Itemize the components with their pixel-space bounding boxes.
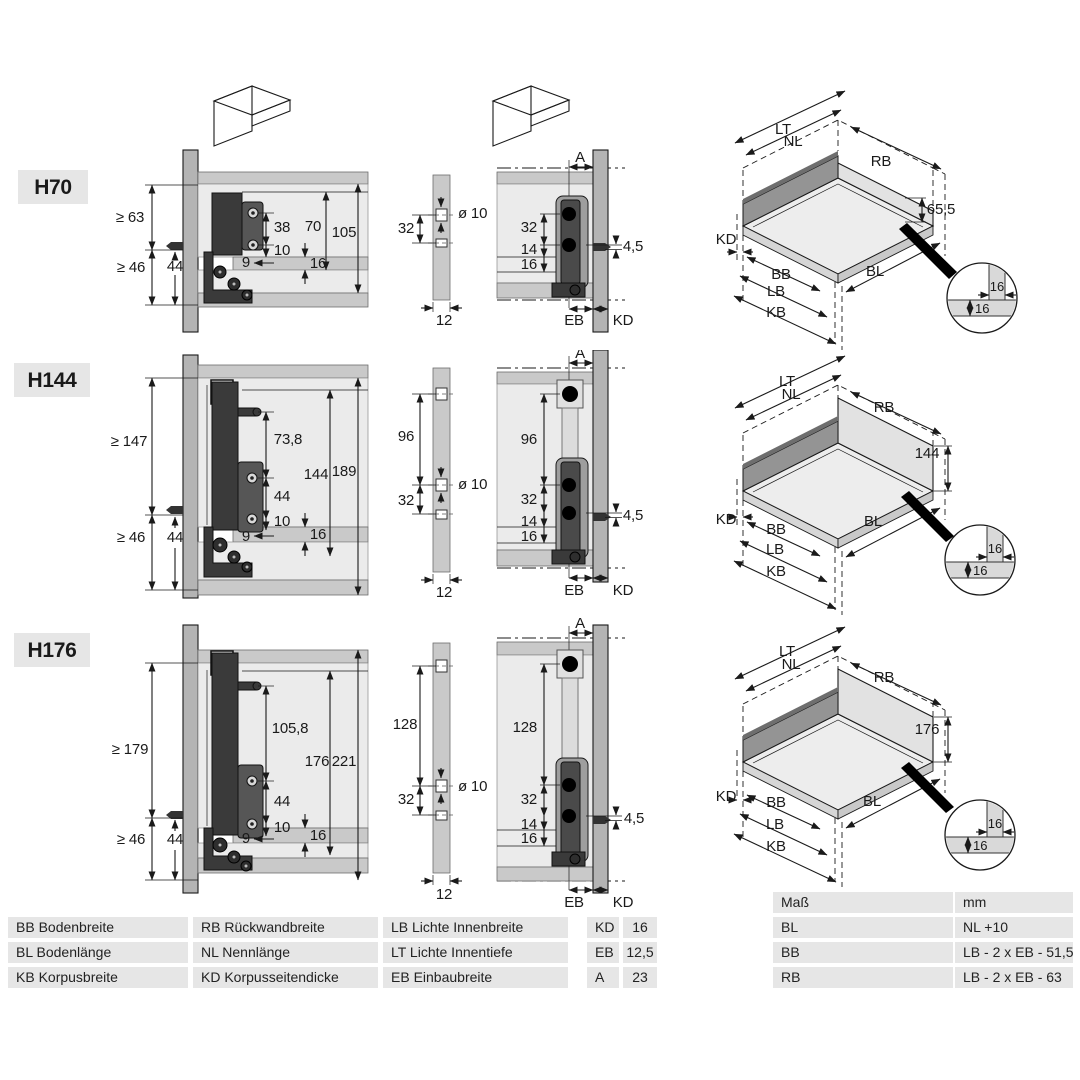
dim-top-span: 73,8 — [274, 431, 302, 448]
dim-bottom-t: 16 — [310, 827, 326, 844]
dim-height: 144 — [915, 445, 939, 462]
cabinet-side-panel — [183, 355, 198, 598]
dim-thick: 12 — [436, 886, 452, 903]
dim-total-h: 105 — [332, 224, 356, 241]
iso-view-h70: LT NL RB 65,5 KD BB LB KB BL — [716, 91, 955, 350]
detail-dim-b: 16 — [973, 838, 987, 853]
dim-nl: NL — [782, 386, 801, 403]
dim-dia: ø 10 — [458, 476, 487, 493]
dim-44: 44 — [167, 529, 183, 546]
side-view-h176: ≥ 179 ≥ 46 44 105,8 44 10 9 176 221 16 — [112, 625, 368, 893]
dim-9: 9 — [242, 528, 250, 545]
row-h176: H176 ≥ 179 ≥ 46 44 105,8 — [0, 615, 1080, 915]
page: H70 ≥ 63 ≥ 46 44 38 10 9 — [0, 0, 1080, 1080]
mass-header: mm — [955, 892, 1073, 913]
dim-lb: LB — [767, 283, 785, 300]
dim-top-span: 128 — [513, 719, 537, 736]
legend-table: BB Bodenbreite RB Rückwandbreite LB Lich… — [8, 917, 568, 988]
dim-32: 32 — [398, 492, 414, 509]
cabinet-side-panel — [183, 625, 198, 893]
detail-circle-h176: 16 16 — [901, 762, 1018, 870]
kv-key: EB — [587, 942, 619, 963]
dim-nl: NL — [782, 656, 801, 673]
cabinet-side-panel — [593, 625, 608, 893]
drawer-side-profile — [212, 382, 238, 530]
dim-nl: NL — [784, 133, 803, 150]
rear-view-h176: A 128 32 14 16 4,5 EB KD — [497, 615, 644, 911]
dim-min-top: ≥ 147 — [111, 433, 147, 450]
iso-view-h176: LT NL RB 176 KD BB LB KB BL — [716, 627, 952, 887]
dim-kd: KD — [613, 312, 634, 329]
dim-inner-h: 144 — [304, 466, 328, 483]
legend-cell: LB Lichte Innenbreite — [383, 917, 568, 938]
kv-value: 12,5 — [623, 942, 657, 963]
legend-cell: BB Bodenbreite — [8, 917, 188, 938]
mass-cell: BL — [773, 917, 953, 938]
dim-32: 32 — [398, 220, 414, 237]
detail-dim-b: 16 — [973, 563, 987, 578]
legend-cell: LT Lichte Innentiefe — [383, 942, 568, 963]
variant-label-text: H176 — [27, 639, 76, 662]
detail-dim-a: 16 — [990, 279, 1004, 294]
dim-inner-h: 176 — [305, 753, 329, 770]
row-h70: H70 ≥ 63 ≥ 46 44 38 10 9 — [0, 85, 1080, 350]
dim-45: 4,5 — [623, 238, 643, 255]
detail-circle-h70: 16 16 — [899, 223, 1020, 333]
drawer-side-profile — [212, 653, 238, 835]
dim-32: 32 — [521, 491, 537, 508]
dim-inner-h: 70 — [305, 218, 321, 235]
drawer-side-profile — [212, 193, 242, 255]
dim-kd: KD — [716, 788, 737, 805]
dim-16: 16 — [521, 528, 537, 545]
dim-min-bottom: ≥ 46 — [117, 831, 145, 848]
mass-cell: LB - 2 x EB - 63 — [955, 967, 1073, 988]
dim-9: 9 — [242, 254, 250, 271]
dim-top-span: 96 — [398, 428, 414, 445]
side-view-h70: ≥ 63 ≥ 46 44 38 10 9 70 105 16 — [116, 150, 368, 332]
detail-circle-h144: 16 16 — [901, 491, 1018, 595]
dim-min-bottom: ≥ 46 — [117, 529, 145, 546]
detail-dim-a: 16 — [988, 541, 1002, 556]
legend-cell: EB Einbaubreite — [383, 967, 568, 988]
dim-kd: KD — [716, 511, 737, 528]
dim-bottom-t: 16 — [310, 526, 326, 543]
dim-a: A — [575, 615, 585, 632]
dim-min-top: ≥ 179 — [112, 741, 148, 758]
dim-height: 176 — [915, 721, 939, 738]
mass-cell: RB — [773, 967, 953, 988]
dim-bb: BB — [771, 266, 791, 283]
dim-bl: BL — [866, 263, 884, 280]
dim-45: 4,5 — [623, 507, 643, 524]
rear-view-h144: A 96 32 14 16 4,5 EB KD — [497, 350, 643, 599]
dim-kd: KD — [613, 894, 634, 911]
dim-thick: 12 — [436, 312, 452, 329]
dim-a: A — [575, 149, 585, 166]
dim-thick: 12 — [436, 584, 452, 601]
dim-eb: EB — [564, 312, 584, 329]
legend-cell: KB Korpusbreite — [8, 967, 188, 988]
dim-44: 44 — [167, 258, 183, 275]
dim-16: 16 — [521, 256, 537, 273]
drill-template-h144: 96 32 ø 10 12 — [398, 368, 487, 601]
dimensions-table: Maß mm BL NL +10 BB LB - 2 x EB - 51,5 R… — [773, 892, 1073, 988]
legend-cell: NL Nennlänge — [193, 942, 378, 963]
dim-32: 32 — [398, 791, 414, 808]
rear-view-h70: A 32 14 16 4,5 EB KD — [497, 149, 643, 332]
dim-rb: RB — [874, 669, 895, 686]
variant-label-text: H144 — [27, 369, 77, 392]
cabinet-side-panel — [593, 150, 608, 332]
dim-hole-span: 44 — [274, 793, 290, 810]
dim-bl: BL — [864, 513, 882, 530]
dim-9: 9 — [242, 830, 250, 847]
dim-a: A — [575, 350, 585, 362]
dim-32: 32 — [521, 219, 537, 236]
dim-hole-span: 38 — [274, 219, 290, 236]
dim-kb: KB — [766, 563, 786, 580]
legend-cell: KD Korpusseitendicke — [193, 967, 378, 988]
drawer-open-front-icon — [214, 86, 290, 146]
detail-dim-b: 16 — [975, 301, 989, 316]
dim-dia: ø 10 — [458, 778, 487, 795]
dim-top-span: 96 — [521, 431, 537, 448]
dim-eb: EB — [564, 582, 584, 599]
kv-value: 16 — [623, 917, 657, 938]
dim-hole-span: 44 — [274, 488, 290, 505]
dim-kb: KB — [766, 838, 786, 855]
key-value-table: KD 16 EB 12,5 A 23 — [587, 917, 657, 988]
dim-rb: RB — [874, 399, 895, 416]
dim-height: 65,5 — [927, 201, 955, 218]
dim-lb: LB — [766, 816, 784, 833]
detail-dim-a: 16 — [988, 816, 1002, 831]
dim-16: 16 — [521, 830, 537, 847]
dim-32: 32 — [521, 791, 537, 808]
mass-cell: LB - 2 x EB - 51,5 — [955, 942, 1073, 963]
variant-label-h144: H144 — [14, 363, 90, 397]
variant-label-h70: H70 — [18, 170, 88, 204]
dim-bottom-t: 16 — [310, 255, 326, 272]
dim-eb: EB — [564, 894, 584, 911]
dim-total-h: 221 — [332, 753, 356, 770]
dim-hole-off: 10 — [274, 819, 290, 836]
dim-hole-off: 10 — [274, 242, 290, 259]
legend-cell: BL Bodenlänge — [8, 942, 188, 963]
dim-top-span: 105,8 — [272, 720, 309, 737]
dim-bb: BB — [766, 521, 786, 538]
iso-view-h144: LT NL RB 144 KD BB LB KB BL — [716, 356, 952, 615]
variant-label-h176: H176 — [14, 633, 90, 667]
dim-kd: KD — [613, 582, 634, 599]
dim-dia: ø 10 — [458, 205, 487, 222]
dim-kd: KD — [716, 231, 737, 248]
mass-cell: BB — [773, 942, 953, 963]
cabinet-side-panel — [593, 350, 608, 582]
mass-header: Maß — [773, 892, 953, 913]
kv-key: KD — [587, 917, 619, 938]
dim-bl: BL — [863, 793, 881, 810]
legend-cell: RB Rückwandbreite — [193, 917, 378, 938]
dim-total-h: 189 — [332, 463, 356, 480]
variant-label-text: H70 — [34, 176, 72, 199]
dim-45: 4,5 — [624, 810, 644, 827]
dim-min-top: ≥ 63 — [116, 209, 144, 226]
dim-44: 44 — [167, 831, 183, 848]
dim-rb: RB — [871, 153, 892, 170]
dim-kb: KB — [766, 304, 786, 321]
kv-key: A — [587, 967, 619, 988]
dim-bb: BB — [766, 794, 786, 811]
drill-template-h176: 128 32 ø 10 12 — [393, 643, 487, 903]
side-view-h144: ≥ 147 ≥ 46 44 73,8 44 10 9 144 189 16 — [111, 355, 368, 598]
dim-hole-off: 10 — [274, 513, 290, 530]
mass-cell: NL +10 — [955, 917, 1073, 938]
dim-top-span: 128 — [393, 716, 417, 733]
drill-template-h70: 32 ø 10 12 — [398, 175, 487, 329]
drawer-back-panel-icon — [493, 86, 569, 146]
dim-min-bottom: ≥ 46 — [117, 259, 145, 276]
dim-lb: LB — [766, 541, 784, 558]
row-h144: H144 ≥ 147 ≥ 46 44 73,8 — [0, 350, 1080, 615]
kv-value: 23 — [623, 967, 657, 988]
